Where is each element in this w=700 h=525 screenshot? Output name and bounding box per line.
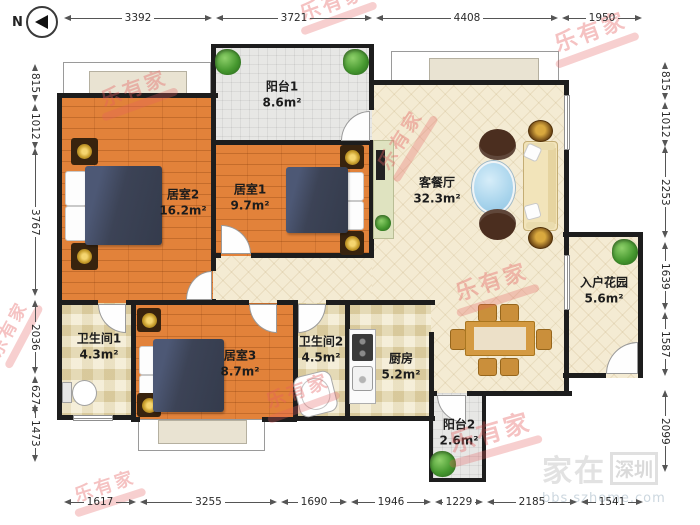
dimension-top-4: 1950 — [562, 12, 642, 24]
sofa-backrest — [548, 148, 556, 224]
dimension-bottom-6: 2185 — [487, 496, 577, 508]
armchair — [479, 129, 516, 160]
toilet-tank — [62, 382, 72, 403]
bay-window-bedroom3 — [138, 419, 265, 451]
toilet — [72, 380, 97, 406]
room-label-balcony1: 阳台18.6m² — [262, 79, 301, 110]
room-label-entry-garden: 入户花园5.6m² — [580, 275, 628, 306]
room-label-bedroom3: 居室38.7m² — [220, 348, 259, 379]
room-label-bedroom2: 居室216.2m² — [159, 187, 206, 218]
wall — [638, 232, 643, 378]
side-table — [528, 227, 553, 249]
dimension-bottom-5: 1229 — [435, 496, 483, 508]
wall — [57, 93, 62, 420]
dimension-top-3: 4408 — [376, 12, 558, 24]
compass-arrow-icon — [35, 15, 48, 29]
wall — [563, 373, 606, 378]
wall — [293, 416, 435, 421]
stove — [352, 334, 373, 361]
plant-icon — [343, 49, 369, 75]
wall — [211, 44, 216, 271]
nightstand — [340, 231, 364, 255]
nightstand — [340, 145, 364, 169]
corridor-floor — [213, 256, 374, 305]
wall — [211, 44, 374, 48]
dining-chair — [536, 329, 552, 350]
room-label-bathroom1: 卫生间14.3m² — [77, 331, 121, 362]
dining-table — [465, 321, 535, 356]
wall — [326, 300, 435, 305]
wall — [369, 44, 374, 110]
dimension-left-3: 3767 — [28, 148, 42, 296]
bay-window-living — [391, 51, 559, 82]
room-label-bathroom2: 卫生间24.5m² — [299, 334, 343, 365]
wall — [429, 478, 486, 482]
site-watermark-text: 家在 — [542, 446, 606, 490]
wall — [131, 300, 136, 420]
side-table — [528, 120, 553, 142]
nightstand — [71, 138, 98, 165]
dimension-top-2: 3721 — [216, 12, 372, 24]
dimension-bottom-3: 1690 — [281, 496, 347, 508]
dimension-bottom-4: 1946 — [351, 496, 431, 508]
window-entry-garden — [564, 255, 570, 310]
dimension-right-1: 815 — [658, 62, 672, 100]
dimension-left-6: 1473 — [28, 404, 42, 462]
site-watermark-boxed: 深圳 — [610, 452, 658, 485]
wall — [564, 310, 569, 396]
dimension-right-6: 2099 — [658, 390, 672, 472]
dimension-top-1: 3392 — [64, 12, 212, 24]
room-label-bedroom1: 居室19.7m² — [230, 182, 269, 213]
dining-chair — [450, 329, 466, 350]
wall — [370, 80, 569, 85]
dimension-bottom-1: 1617 — [64, 496, 136, 508]
dimension-bottom-2: 3255 — [140, 496, 277, 508]
dimension-left-2: 1012 — [28, 104, 42, 146]
plant-icon — [612, 239, 638, 265]
bay-sill — [158, 420, 247, 444]
wall — [563, 232, 643, 237]
wall — [126, 300, 249, 305]
dimension-right-2: 1012 — [658, 102, 672, 144]
dimension-right-3: 2253 — [658, 146, 672, 238]
dining-chair — [500, 304, 519, 322]
dimension-bottom-7: 1541 — [581, 496, 643, 508]
window-living-right — [564, 95, 570, 150]
dimension-right-5: 1587 — [658, 312, 672, 376]
plant-icon — [215, 49, 241, 75]
compass: N — [12, 6, 58, 38]
bed-bedroom3 — [153, 339, 224, 412]
coffee-table — [472, 161, 515, 214]
room-label-living: 客餐厅32.3m² — [413, 175, 460, 206]
floor-plan: N — [0, 0, 700, 525]
compass-north-label: N — [12, 15, 23, 30]
dining-chair — [478, 358, 497, 376]
bed-bedroom2 — [85, 166, 162, 245]
compass-icon — [26, 6, 58, 38]
dimension-left-4: 2036 — [28, 300, 42, 374]
dining-chair — [500, 358, 519, 376]
dimension-right-4: 1639 — [658, 242, 672, 310]
sink — [352, 366, 373, 391]
plant-icon — [375, 215, 391, 231]
bed-bedroom1 — [286, 167, 348, 233]
nightstand — [71, 243, 98, 270]
wall — [564, 80, 569, 95]
window-bathroom1 — [73, 415, 113, 421]
dimension-left-1: 815 — [28, 64, 42, 102]
bed-pillow — [65, 206, 87, 241]
dining-table-top — [474, 327, 526, 350]
room-label-kitchen: 厨房5.2m² — [381, 351, 420, 382]
wall — [57, 300, 98, 305]
brand-watermark: 乐有家 — [67, 467, 146, 517]
dimension-left-5: 627 — [28, 376, 42, 402]
nightstand — [137, 308, 161, 332]
bed-pillow — [65, 171, 87, 206]
wall — [564, 150, 569, 255]
